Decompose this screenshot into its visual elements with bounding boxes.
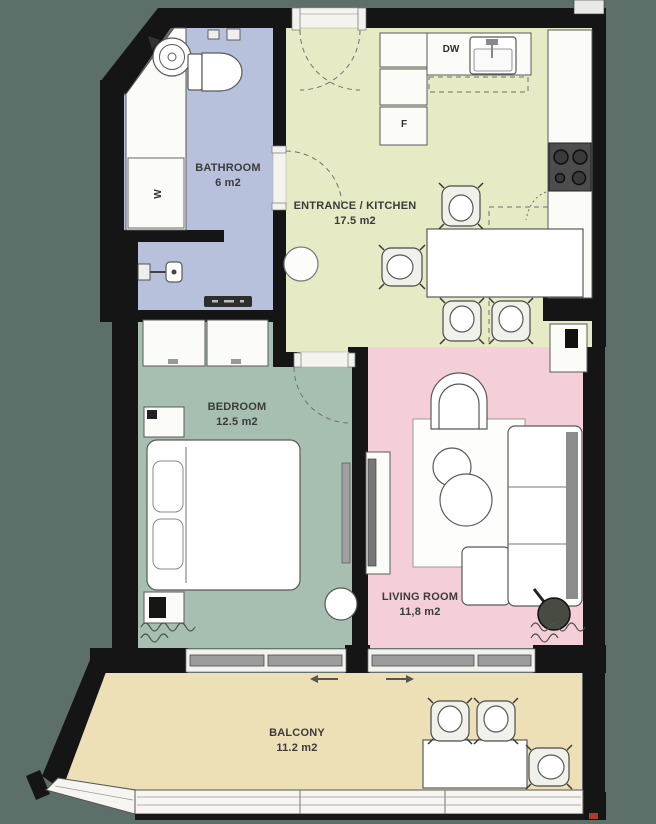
- freezer-cabinet: [380, 107, 427, 145]
- tp-holder: [208, 30, 219, 39]
- bedroom-window: [190, 655, 264, 666]
- tv: [368, 459, 376, 566]
- sofa-chaise: [462, 547, 510, 605]
- plant: [538, 598, 570, 630]
- dining-chair: [379, 245, 425, 289]
- entrance-stool: [284, 247, 318, 281]
- shaft-top-right: [574, 0, 604, 14]
- dining-chair: [489, 298, 533, 344]
- dining-chair: [439, 183, 483, 229]
- balcony-railing: [135, 790, 583, 814]
- coffee-table: [440, 474, 492, 526]
- front-door-jamb: [292, 8, 300, 30]
- living-sliding-door: [372, 655, 474, 666]
- bedroom-dresser: [342, 463, 350, 563]
- stove: [549, 143, 591, 191]
- bathroom-door-jamb: [272, 203, 286, 210]
- toilet-bowl: [202, 53, 242, 91]
- sofa-backrest: [566, 432, 578, 599]
- front-door-jamb: [358, 8, 366, 30]
- sink-tap: [486, 39, 498, 45]
- vanity-sink: [153, 38, 191, 76]
- shower-mixer: [138, 264, 150, 280]
- floor-plan-drawing: [0, 0, 656, 824]
- pouf: [325, 588, 357, 620]
- pillow: [153, 519, 183, 569]
- dining-table: [427, 229, 583, 297]
- kitchen-cabinet: [380, 69, 427, 105]
- wall-shelf: [227, 29, 240, 40]
- front-door-opening: [300, 8, 358, 28]
- pillow: [153, 461, 183, 512]
- bedroom-door-jamb: [294, 353, 301, 367]
- balcony-chair: [428, 698, 472, 744]
- toilet-tank: [188, 54, 202, 90]
- bathroom-door-opening: [273, 150, 286, 206]
- balcony-table: [423, 740, 527, 788]
- bathroom-door-jamb: [272, 146, 286, 153]
- bedside-lamp: [149, 597, 166, 618]
- bedroom-door-opening: [300, 352, 349, 367]
- bedroom-window: [268, 655, 342, 666]
- living-window: [478, 655, 531, 666]
- bedroom-door-jamb: [348, 353, 355, 367]
- balcony-chair: [474, 698, 518, 744]
- balcony-chair: [526, 745, 572, 789]
- dining-chair: [440, 298, 484, 344]
- kitchen-cabinet: [380, 33, 427, 67]
- red-marker: [589, 813, 598, 819]
- floor-plan: BATHROOM 6 m2 ENTRANCE / KITCHEN 17.5 m2…: [0, 0, 656, 824]
